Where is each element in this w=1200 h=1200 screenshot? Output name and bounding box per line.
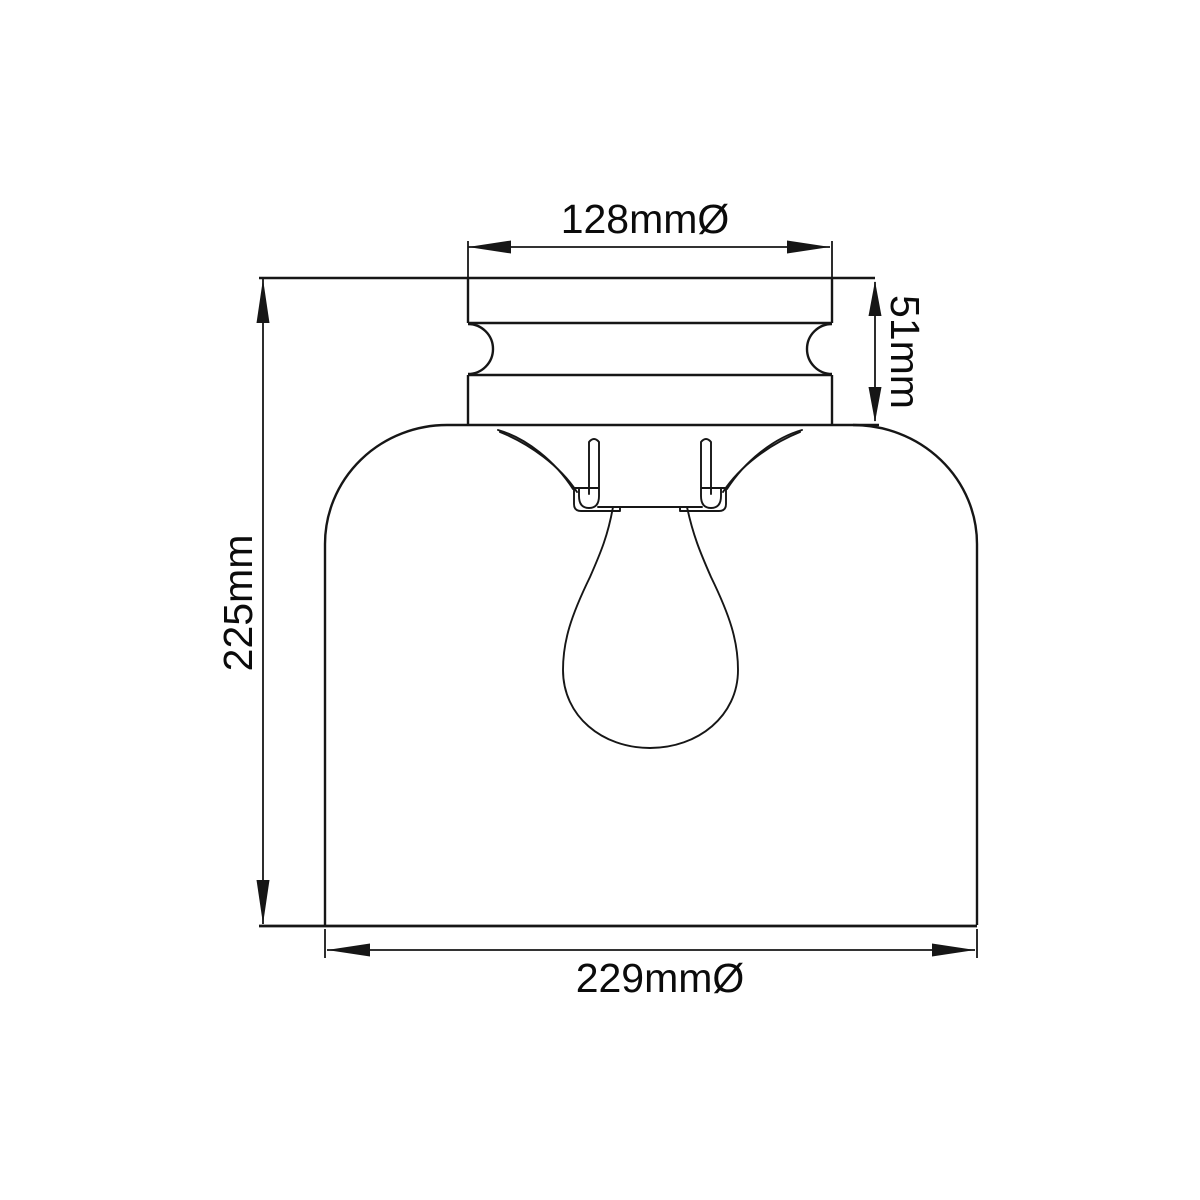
fitter-groove-left (468, 324, 493, 374)
dim-label-top-width: 128mmØ (561, 196, 730, 242)
lamp-holder-assembly (498, 430, 802, 511)
dim-label-overall-height: 225mm (215, 535, 261, 672)
spider-blade-right-inner (723, 432, 800, 492)
spider-blade-right-outer (727, 430, 802, 489)
drawing-canvas: 128mmØ 51mm 225mm 229mmØ (0, 0, 1200, 1200)
dimension-shade-width: 229mmØ (325, 929, 977, 1001)
clip-right (701, 439, 721, 508)
fitter (259, 278, 879, 425)
bulb-outline (563, 507, 738, 748)
dimension-overall-height: 225mm (215, 279, 270, 924)
dimension-top-width: 128mmØ (468, 196, 832, 277)
shade-right-outline (853, 425, 977, 925)
arrow-right-icon (932, 944, 975, 957)
glass-shade (259, 425, 977, 926)
shade-left-outline (325, 425, 447, 925)
arrow-left-icon (468, 241, 511, 254)
bulb (563, 507, 738, 748)
spider-blade-left-inner (500, 432, 577, 492)
fitter-groove-right (807, 324, 832, 374)
arrow-left-icon (327, 944, 370, 957)
dim-label-shade-width: 229mmØ (576, 955, 745, 1001)
arrow-down-icon (869, 387, 882, 422)
dimension-drawing-svg: 128mmØ 51mm 225mm 229mmØ (0, 0, 1200, 1200)
arrow-down-icon (257, 880, 270, 924)
arrow-up-icon (257, 279, 270, 323)
arrow-right-icon (787, 241, 830, 254)
dimension-fitter-height: 51mm (869, 281, 929, 422)
clip-left (579, 439, 599, 508)
spider-blade-left-outer (498, 430, 573, 489)
dim-label-fitter-height: 51mm (882, 295, 928, 409)
arrow-up-icon (869, 281, 882, 316)
